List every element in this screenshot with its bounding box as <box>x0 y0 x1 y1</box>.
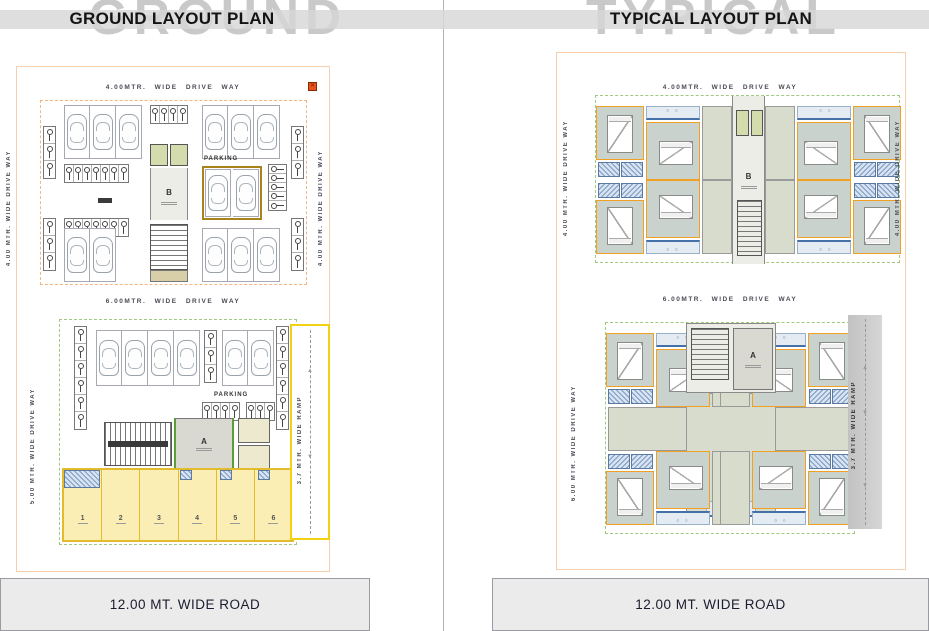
scooter-parking <box>74 326 87 430</box>
scooter-icon <box>75 395 86 412</box>
shop-subtext <box>230 523 240 524</box>
shop-unit: 4 <box>179 470 217 540</box>
scooter-icon <box>74 165 83 182</box>
utility-cells <box>238 418 270 470</box>
parking-stalls <box>64 228 116 282</box>
scooter-icon <box>205 331 216 348</box>
scooter-icon <box>75 412 86 429</box>
lift-cells <box>736 110 763 136</box>
car-icon <box>231 114 251 150</box>
toilet-block <box>220 470 232 480</box>
scooter-parking <box>268 164 287 211</box>
scooter-icon <box>119 165 128 182</box>
scooter-icon <box>151 106 160 123</box>
scooter-parking <box>43 218 56 271</box>
living-area <box>765 106 795 180</box>
parking-label: PARKING <box>214 392 248 398</box>
car-icon <box>93 114 113 150</box>
wing-label-b: B <box>166 188 172 197</box>
balcony: ○ ○ <box>752 511 806 525</box>
shop-subtext <box>268 523 278 524</box>
car-icon <box>205 237 225 273</box>
scooter-icon <box>277 344 288 361</box>
road-band: 12.00 MT. WIDE ROAD <box>492 578 929 631</box>
scooter-icon <box>269 183 286 192</box>
shop-number: 1 <box>81 515 85 522</box>
ramp-centerline <box>865 319 866 525</box>
parking-stalls <box>202 105 280 159</box>
ramp-centerline <box>310 330 311 534</box>
lift-lobby-core: B <box>150 168 188 220</box>
bedroom <box>646 122 700 180</box>
bed-icon <box>804 141 838 165</box>
scooter-icon <box>83 165 92 182</box>
ground-floor-block: PARKING A 1 2 3 4 5 6 <box>62 322 294 542</box>
apartment-unit: ○ ○ <box>720 451 856 535</box>
scooter-parking <box>64 164 129 183</box>
car-icon <box>236 175 256 211</box>
living-area <box>702 106 732 180</box>
scooter-icon <box>44 127 55 144</box>
scooter-icon <box>75 327 86 344</box>
parking-stall <box>254 105 280 159</box>
scooter-icon <box>92 165 101 182</box>
scooter-parking <box>276 326 289 430</box>
shop-number: 3 <box>157 515 161 522</box>
toilet-block <box>258 470 270 480</box>
bed-icon <box>819 342 845 380</box>
shop-unit: 6 <box>255 470 292 540</box>
drive-way-label-lower-left: 5.00 MTR. WIDE DRIVE WAY <box>30 388 36 504</box>
shop-number: 5 <box>233 515 237 522</box>
parking-stall <box>205 169 231 217</box>
wing-label-wrap: B <box>733 166 764 189</box>
lift-icon <box>736 110 749 136</box>
parking-stall <box>254 228 280 282</box>
highlighted-parking <box>202 166 262 220</box>
scooter-icon <box>277 361 288 378</box>
shop-subtext <box>116 523 126 524</box>
lobby-subtext <box>161 204 177 205</box>
direction-arrow-icon: ▲ <box>307 368 313 374</box>
ramp: ▲ ▼ 3.7 MTR. WIDE RAMP <box>290 324 330 540</box>
scooter-icon <box>269 192 286 201</box>
scooter-icon <box>292 219 303 236</box>
parking-stall <box>228 105 254 159</box>
bathrooms <box>598 183 643 198</box>
car-icon <box>257 114 277 150</box>
parking-stalls <box>222 330 274 386</box>
scooter-icon <box>277 327 288 344</box>
bed-icon <box>669 466 703 490</box>
bed-icon <box>607 207 633 245</box>
parking-stall <box>233 169 259 217</box>
road-band: 12.00 MT. WIDE ROAD <box>0 578 370 631</box>
apartment-unit: ○ ○ <box>765 180 901 264</box>
lift-lobby-a: A <box>733 328 773 390</box>
scooter-icon <box>75 378 86 395</box>
apartment-unit: ○ ○ <box>596 96 732 180</box>
ramp: ▲ ▼ ▼ 3.7 MTR. WIDE RAMP <box>848 315 882 529</box>
scooter-icon <box>44 236 55 253</box>
lift-cells <box>150 144 188 166</box>
scooter-icon <box>292 144 303 161</box>
bedroom <box>752 451 806 509</box>
balcony: ○ ○ <box>797 106 851 120</box>
lobby-subtext <box>745 367 761 368</box>
shop-unit: 5 <box>217 470 255 540</box>
scooter-icon <box>101 165 110 182</box>
typical-plan-panel: TYPICAL TYPICAL LAYOUT PLAN 4.00MTR. WID… <box>443 0 929 631</box>
lift-icon <box>170 144 188 166</box>
balcony: ○ ○ <box>656 511 710 525</box>
bed-icon <box>607 115 633 153</box>
car-icon <box>119 114 139 150</box>
bedroom <box>606 333 654 387</box>
scooter-icon <box>44 161 55 178</box>
car-icon <box>67 237 87 273</box>
parking-stalls <box>202 228 280 282</box>
bathrooms <box>608 389 653 404</box>
bathroom <box>854 183 876 198</box>
scooter-icon <box>110 165 119 182</box>
scooter-parking <box>291 218 304 271</box>
bathrooms <box>608 454 653 469</box>
toilet-block <box>64 470 100 488</box>
page-title-typical: TYPICAL LAYOUT PLAN <box>610 9 812 29</box>
parking-stall <box>64 228 90 282</box>
lobby-subtext <box>741 186 757 187</box>
bedroom <box>596 106 644 160</box>
bed-icon <box>659 141 693 165</box>
scooter-icon <box>160 106 169 123</box>
wheel-stop <box>98 198 112 203</box>
scooter-icon <box>75 361 86 378</box>
living-area <box>702 180 732 254</box>
ramp-label: 3.7 MTR. WIDE RAMP <box>297 396 303 484</box>
scooter-icon <box>292 161 303 178</box>
drive-way-label-left: 4.00 MTR. WIDE DRIVE WAY <box>563 120 569 236</box>
scooter-icon <box>205 365 216 382</box>
car-icon <box>225 340 245 376</box>
scooter-parking <box>150 105 188 124</box>
lobby-subtext <box>196 448 212 449</box>
bedroom <box>797 122 851 180</box>
direction-arrow-icon: ▼ <box>862 483 868 489</box>
utility-cell <box>238 418 270 443</box>
scooter-icon <box>44 219 55 236</box>
upper-parking-block: B PARKING <box>40 100 307 285</box>
scooter-icon <box>205 348 216 365</box>
lift-lobby-core: B <box>732 96 765 264</box>
parking-stall <box>64 105 90 159</box>
scooter-icon <box>269 165 286 174</box>
car-icon <box>231 237 251 273</box>
page-title-ground: GROUND LAYOUT PLAN <box>69 9 274 29</box>
wing-label-a: A <box>750 351 756 360</box>
drive-way-label-mid: 6.00MTR. WIDE DRIVE WAY <box>663 296 798 303</box>
shop-number: 2 <box>119 515 123 522</box>
bed-icon <box>819 478 845 516</box>
wing-label-b: B <box>746 172 752 181</box>
living-area <box>720 451 750 525</box>
drive-way-label-left: 4.00 MTR. WIDE DRIVE WAY <box>6 150 12 266</box>
direction-arrow-icon: ▼ <box>307 454 313 460</box>
bed-icon <box>864 115 890 153</box>
road-label: 12.00 MT. WIDE ROAD <box>635 597 786 612</box>
parking-stalls <box>64 105 142 159</box>
shop-number: 4 <box>195 515 199 522</box>
parking-stall <box>148 330 174 386</box>
shop-number: 6 <box>271 515 275 522</box>
parking-stalls <box>96 330 200 386</box>
scooter-icon <box>292 236 303 253</box>
balcony: ○ ○ <box>646 240 700 254</box>
bathroom <box>854 162 876 177</box>
bathroom <box>621 162 643 177</box>
bathroom <box>608 454 630 469</box>
direction-arrow-icon: ▼ <box>862 410 868 416</box>
stair-landing <box>150 270 188 282</box>
bathrooms <box>598 162 643 177</box>
bathroom <box>809 389 831 404</box>
parking-stall <box>90 228 116 282</box>
bathrooms <box>854 162 899 177</box>
scooter-icon <box>269 174 286 183</box>
bedroom <box>656 451 710 509</box>
car-icon <box>251 340 271 376</box>
scooter-icon <box>178 106 187 123</box>
scooter-icon <box>277 395 288 412</box>
parking-stall <box>116 105 142 159</box>
balcony: ○ ○ <box>646 106 700 120</box>
plan-marker-icon: ✕ <box>308 82 317 91</box>
staircase <box>737 200 762 256</box>
car-icon <box>151 340 171 376</box>
wing-label-a: A <box>201 437 207 446</box>
lift-icon <box>150 144 168 166</box>
scooter-icon <box>292 127 303 144</box>
bed-icon <box>804 195 838 219</box>
bathrooms <box>854 183 899 198</box>
scooter-icon <box>277 378 288 395</box>
car-icon <box>67 114 87 150</box>
shop-unit: 2 <box>102 470 140 540</box>
scooter-parking <box>291 126 304 179</box>
scooter-icon <box>269 201 286 210</box>
scooter-icon <box>119 219 128 236</box>
bathroom <box>631 389 653 404</box>
parking-stall <box>202 105 228 159</box>
parking-stall <box>96 330 122 386</box>
direction-arrow-icon: ▲ <box>862 365 868 371</box>
scooter-parking <box>43 126 56 179</box>
utility-cell <box>238 445 270 470</box>
drive-way-label-lower-left: 6.00 MTR. WIDE DRIVE WAY <box>571 385 577 501</box>
a-wing-block: ○ ○ ○ ○ ○ ○ ○ ○ ○ ○ <box>605 322 855 534</box>
shop-subtext <box>192 523 202 524</box>
ramp-label: 3.7 MTR. WIDE RAMP <box>851 381 857 469</box>
scooter-icon <box>44 144 55 161</box>
parking-stall <box>122 330 148 386</box>
bathroom <box>621 183 643 198</box>
scooter-parking <box>204 330 217 383</box>
bed-icon <box>617 342 643 380</box>
bathroom <box>809 454 831 469</box>
car-icon <box>125 340 145 376</box>
car-icon <box>208 175 228 211</box>
bed-icon <box>617 478 643 516</box>
bathroom <box>631 454 653 469</box>
bedroom <box>797 180 851 238</box>
car-icon <box>99 340 119 376</box>
scooter-icon <box>75 344 86 361</box>
parking-stall <box>228 228 254 282</box>
drive-way-label-top: 4.00MTR. WIDE DRIVE WAY <box>663 84 798 91</box>
drive-way-label-top: 4.00MTR. WIDE DRIVE WAY <box>106 84 241 91</box>
lift-lobby-a: A <box>174 418 234 470</box>
car-icon <box>177 340 197 376</box>
bedroom <box>853 106 901 160</box>
lobby-subtext <box>161 202 177 203</box>
bathroom <box>598 162 620 177</box>
bedroom <box>646 180 700 238</box>
shop-subtext <box>78 523 88 524</box>
scooter-icon <box>292 253 303 270</box>
apartment-unit: ○ ○ <box>765 96 901 180</box>
scooter-icon <box>65 165 74 182</box>
stair-mid-landing <box>108 441 168 447</box>
scooter-icon <box>277 412 288 429</box>
drive-way-label-right: 4.00 MTR. WIDE DRIVE WAY <box>318 150 324 266</box>
scooter-icon <box>44 253 55 270</box>
car-icon <box>93 237 113 273</box>
staircase <box>150 224 188 270</box>
parking-label: PARKING <box>204 156 238 162</box>
shop-unit: 3 <box>140 470 178 540</box>
bedroom <box>596 200 644 254</box>
bedroom <box>853 200 901 254</box>
bed-icon <box>864 207 890 245</box>
staircase <box>691 328 729 380</box>
shop-subtext <box>154 523 164 524</box>
car-icon <box>257 237 277 273</box>
parking-stall <box>202 228 228 282</box>
bathroom <box>608 389 630 404</box>
scooter-icon <box>169 106 178 123</box>
car-icon <box>205 114 225 150</box>
lobby-subtext <box>741 188 757 189</box>
apartment-unit: ○ ○ <box>596 180 732 264</box>
toilet-block <box>180 470 192 480</box>
bathroom <box>598 183 620 198</box>
lobby-subtext <box>196 450 212 451</box>
lobby-subtext <box>745 365 761 366</box>
parking-stall <box>90 105 116 159</box>
b-wing-block: ○ ○ ○ ○ ○ ○ ○ ○ <box>595 95 900 263</box>
lift-icon <box>751 110 764 136</box>
living-area <box>765 180 795 254</box>
parking-stall <box>222 330 248 386</box>
bed-icon <box>759 466 793 490</box>
parking-stall <box>248 330 274 386</box>
road-label: 12.00 MT. WIDE ROAD <box>110 597 261 612</box>
bedroom <box>606 471 654 525</box>
lift-lobby-core: A <box>686 323 776 393</box>
parking-stall <box>174 330 200 386</box>
drive-way-label-right: 4.00 MTR. WIDE DRIVE WAY <box>895 120 901 236</box>
drive-way-label-mid: 6.00MTR. WIDE DRIVE WAY <box>106 298 241 305</box>
ground-plan-panel: GROUND GROUND LAYOUT PLAN 4.00MTR. WIDE … <box>0 0 443 631</box>
bed-icon <box>659 195 693 219</box>
balcony: ○ ○ <box>797 240 851 254</box>
